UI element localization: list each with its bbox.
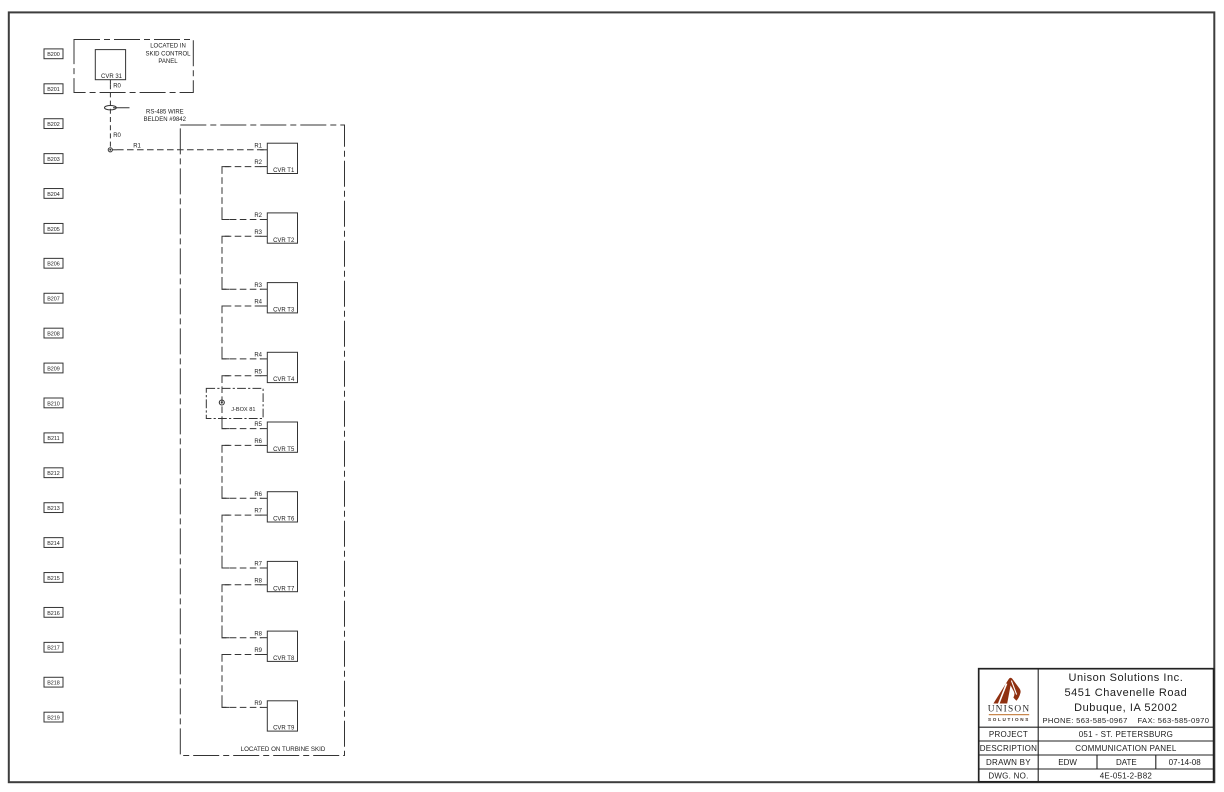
- svg-text:PROJECT: PROJECT: [989, 730, 1028, 739]
- svg-text:B217: B217: [47, 646, 60, 652]
- svg-text:CVR T7: CVR T7: [273, 586, 295, 592]
- svg-text:4E-051-2-B82: 4E-051-2-B82: [1100, 772, 1153, 781]
- svg-text:R0: R0: [113, 84, 121, 90]
- svg-text:CVR T2: CVR T2: [273, 238, 295, 244]
- svg-text:R3: R3: [254, 230, 262, 236]
- svg-text:LOCATED ON TURBINE SKID: LOCATED ON TURBINE SKID: [241, 746, 326, 753]
- svg-text:R7: R7: [254, 509, 262, 515]
- svg-text:B214: B214: [47, 541, 60, 547]
- svg-text:CVR T3: CVR T3: [273, 308, 295, 314]
- svg-text:R9: R9: [254, 648, 262, 654]
- svg-text:CVR T4: CVR T4: [273, 377, 295, 383]
- svg-text:B215: B215: [47, 576, 60, 582]
- svg-text:R8: R8: [254, 578, 262, 584]
- svg-text:SOLUTIONS: SOLUTIONS: [988, 717, 1030, 722]
- svg-text:R4: R4: [254, 300, 262, 306]
- svg-text:B204: B204: [47, 192, 60, 198]
- svg-text:CVR T8: CVR T8: [273, 656, 295, 662]
- svg-text:R9: R9: [254, 701, 262, 707]
- svg-text:J-BOX 81: J-BOX 81: [231, 407, 255, 413]
- svg-text:B209: B209: [47, 366, 60, 372]
- svg-text:DWG. NO.: DWG. NO.: [988, 772, 1028, 781]
- svg-text:UNISON: UNISON: [988, 704, 1031, 714]
- svg-text:PHONE: 563-585-0967 FAX: 56: PHONE: 563-585-0967 FAX: 563-585-0970: [1042, 716, 1209, 725]
- svg-text:R2: R2: [254, 213, 262, 219]
- svg-text:BELDEN #9842: BELDEN #9842: [144, 117, 187, 123]
- svg-text:B208: B208: [47, 331, 60, 337]
- svg-text:B202: B202: [47, 122, 60, 128]
- svg-text:DESCRIPTION: DESCRIPTION: [980, 744, 1037, 753]
- svg-text:Unison Solutions Inc.: Unison Solutions Inc.: [1068, 672, 1183, 684]
- svg-text:B213: B213: [47, 506, 60, 512]
- svg-text:B219: B219: [47, 715, 60, 721]
- svg-text:R6: R6: [254, 492, 262, 498]
- svg-text:B210: B210: [47, 401, 60, 407]
- svg-text:B212: B212: [47, 471, 60, 477]
- svg-text:B205: B205: [47, 227, 60, 233]
- svg-text:R1: R1: [254, 143, 262, 149]
- svg-text:R8: R8: [254, 631, 262, 637]
- svg-text:R4: R4: [254, 353, 262, 359]
- svg-text:DATE: DATE: [1116, 758, 1137, 767]
- svg-text:B207: B207: [47, 297, 60, 303]
- svg-text:R6: R6: [254, 439, 262, 445]
- svg-text:07-14-08: 07-14-08: [1169, 758, 1202, 767]
- svg-text:CVR T5: CVR T5: [273, 447, 295, 453]
- svg-text:B203: B203: [47, 157, 60, 163]
- svg-text:051 - ST. PETERSBURG: 051 - ST. PETERSBURG: [1079, 730, 1173, 739]
- svg-text:CVR T9: CVR T9: [273, 726, 295, 732]
- svg-text:B218: B218: [47, 681, 60, 687]
- svg-text:5451 Chavenelle Road: 5451 Chavenelle Road: [1064, 687, 1187, 699]
- svg-text:R5: R5: [254, 422, 262, 428]
- svg-text:LOCATED IN: LOCATED IN: [150, 43, 186, 49]
- svg-text:EDW: EDW: [1058, 758, 1077, 767]
- svg-text:CVR 31: CVR 31: [101, 74, 123, 80]
- svg-text:RS-485 WIRE: RS-485 WIRE: [146, 110, 184, 116]
- svg-text:PANEL: PANEL: [158, 59, 178, 65]
- svg-text:R1: R1: [133, 143, 141, 149]
- svg-text:R2: R2: [254, 160, 262, 166]
- svg-text:B200: B200: [47, 52, 60, 58]
- svg-text:B216: B216: [47, 611, 60, 617]
- svg-text:CVR T1: CVR T1: [273, 168, 295, 174]
- svg-text:DRAWN BY: DRAWN BY: [986, 758, 1031, 767]
- svg-text:SKID CONTROL: SKID CONTROL: [145, 51, 191, 57]
- svg-text:Dubuque, IA 52002: Dubuque, IA 52002: [1074, 702, 1178, 714]
- svg-text:R3: R3: [254, 283, 262, 289]
- svg-text:R0: R0: [113, 133, 121, 139]
- svg-text:B206: B206: [47, 262, 60, 268]
- svg-text:CVR T6: CVR T6: [273, 517, 295, 523]
- svg-text:R7: R7: [254, 562, 262, 568]
- svg-text:COMMUNICATION PANEL: COMMUNICATION PANEL: [1075, 744, 1177, 753]
- svg-text:R5: R5: [254, 369, 262, 375]
- svg-text:B201: B201: [47, 87, 60, 93]
- svg-text:B211: B211: [47, 436, 59, 442]
